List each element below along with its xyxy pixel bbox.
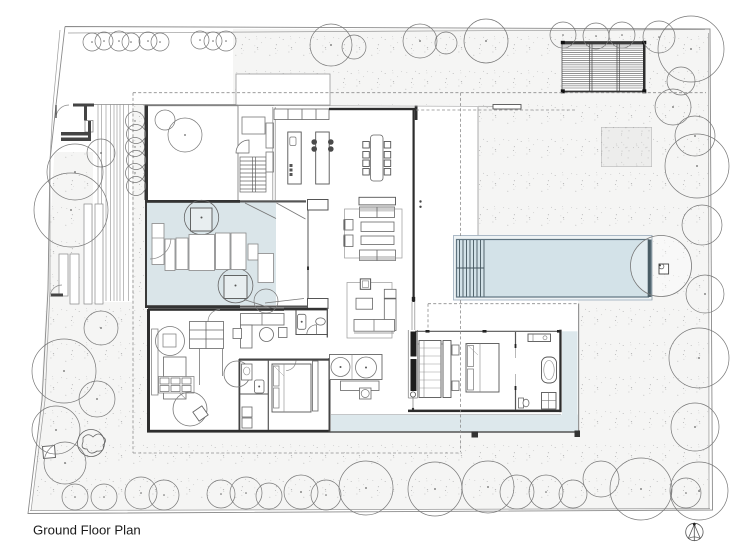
svg-text:Ground Floor Plan: Ground Floor Plan — [33, 523, 141, 538]
